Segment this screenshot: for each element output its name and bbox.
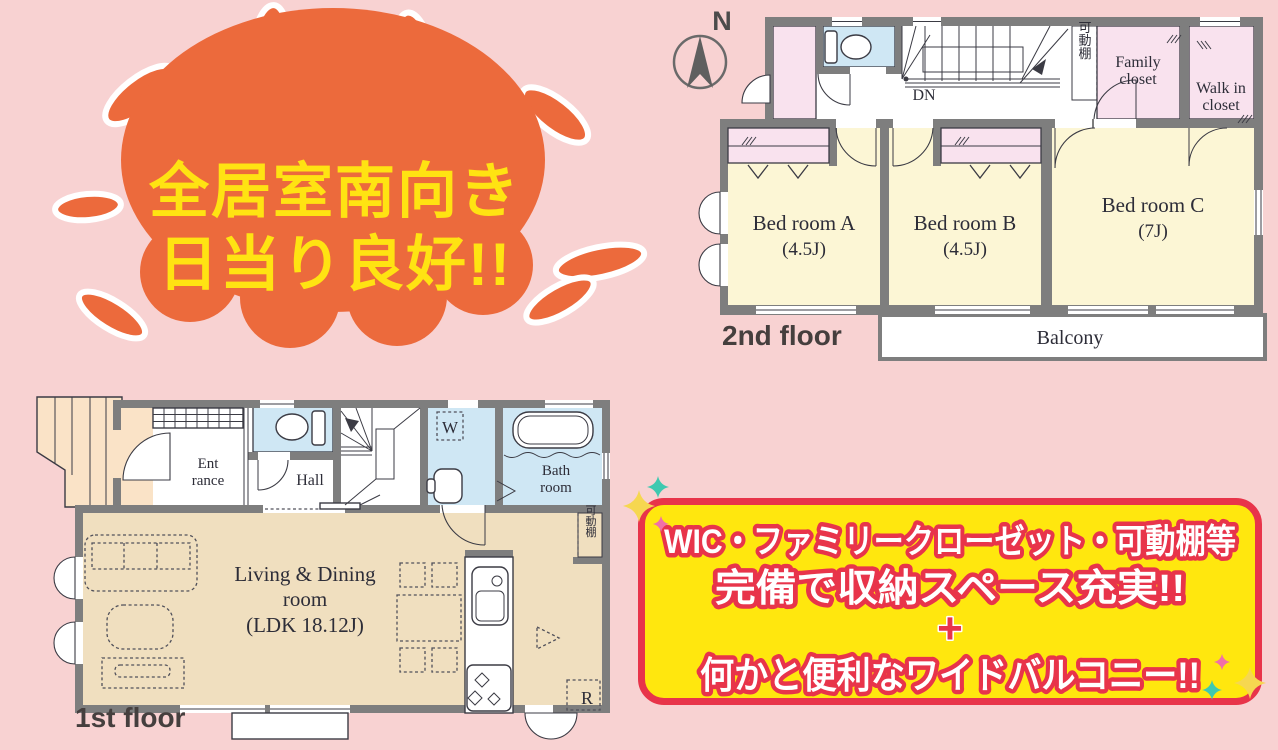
living-label-2: room xyxy=(283,587,327,611)
sparkle-icon xyxy=(623,476,669,532)
washer-label: W xyxy=(442,418,459,437)
banner-line-1: WIC・ファミリークローゼット・可動棚等 xyxy=(664,523,1236,561)
sparkles-bottom-right xyxy=(1192,648,1278,714)
swing-window-icon xyxy=(54,557,75,599)
banner-line-3: 何かと便利なワイドバルコニー!! xyxy=(700,655,1200,696)
floorplan-2f: Balcony xyxy=(670,5,1270,365)
bathroom-label-2: room xyxy=(540,480,572,496)
bedroom-a-size: (4.5J) xyxy=(782,239,826,260)
swing-window-icon xyxy=(54,622,75,664)
bedroom-c-size: (7J) xyxy=(1138,221,1168,242)
living-label-1: Living & Dining xyxy=(234,562,376,586)
back-door-swing-icon xyxy=(525,713,577,739)
living-floor xyxy=(83,513,602,705)
hall-label: Hall xyxy=(296,472,324,489)
sparkles-top-left xyxy=(612,470,684,542)
closet-2f-left xyxy=(773,26,816,119)
feature-banner: WIC・ファミリークローゼット・可動棚等 完備で収納スペース充実!! + 何かと… xyxy=(638,498,1262,705)
bedroom-a-label: Bed room A xyxy=(753,211,856,235)
family-closet-label-1: Family xyxy=(1115,54,1160,71)
shelf-label-1f: 可動棚 xyxy=(584,505,597,539)
entrance-label-1: Ent xyxy=(198,456,220,472)
family-closet-label-2: closet xyxy=(1119,71,1157,88)
banner-text: WIC・ファミリークローゼット・可動棚等 完備で収納スペース充実!! + 何かと… xyxy=(645,505,1255,698)
swing-window-icon xyxy=(699,192,720,234)
sunburst-graphic: 全居室南向き 日当り良好!! xyxy=(15,0,660,365)
swing-window-icon xyxy=(742,75,770,103)
floor1-label: 1st floor xyxy=(75,702,186,733)
shelf-label-2f: 可動棚 xyxy=(1077,21,1092,60)
bathroom-label-1: Bath xyxy=(542,463,571,479)
balcony-label: Balcony xyxy=(1037,327,1104,349)
stairs-dn-label: DN xyxy=(912,87,936,104)
walk-in-closet-label-1: Walk in xyxy=(1196,80,1246,97)
walk-in-closet-label-2: closet xyxy=(1202,97,1240,114)
banner-plus: + xyxy=(937,604,963,653)
floor2-label: 2nd floor xyxy=(722,320,842,351)
porch-area xyxy=(37,397,122,507)
bedroom-c-label: Bed room C xyxy=(1102,193,1205,217)
terrace-step xyxy=(232,713,348,739)
bedroom-b-label: Bed room B xyxy=(914,211,1017,235)
bedroom-b-size: (4.5J) xyxy=(943,239,987,260)
living-label-3: (LDK 18.12J) xyxy=(246,613,364,637)
sparkle-icon xyxy=(1202,654,1266,700)
floorplan-1f: W Bath room 可動棚 xyxy=(20,385,650,750)
shoe-cabinet-icon xyxy=(153,408,243,428)
entrance-label-2: rance xyxy=(192,473,225,489)
flyer-page: 全居室南向き 日当り良好!! N Balcony xyxy=(0,0,1278,750)
sun-headline-line1: 全居室南向き xyxy=(148,158,521,225)
fridge-label: R xyxy=(581,688,593,708)
kitchen-counter-icon xyxy=(465,557,513,713)
balcony-area: Balcony xyxy=(880,315,1265,359)
sun-headline-line2: 日当り良好!! xyxy=(158,231,512,298)
swing-window-icon xyxy=(699,244,720,286)
